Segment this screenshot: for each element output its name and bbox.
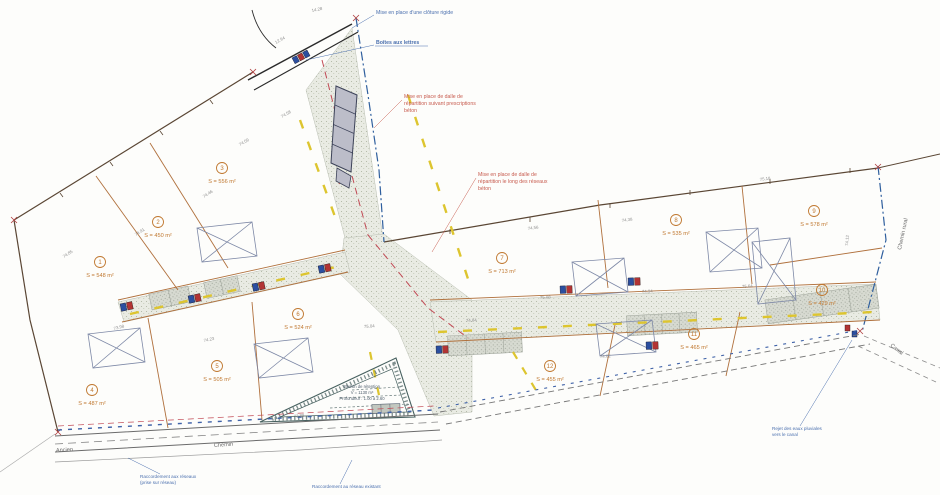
lot-area: S = 487 m² xyxy=(78,401,106,407)
lot-area: S = 455 m² xyxy=(536,377,564,383)
utility-box-pair xyxy=(560,286,572,294)
lot-area: S = 556 m² xyxy=(208,179,236,185)
crossed-building xyxy=(88,328,145,368)
mailboxes-note: Boîtes aux lettres xyxy=(376,40,419,46)
outfall-note: Rejet des eaux pluviales xyxy=(772,426,822,431)
lot-line-2-3 xyxy=(150,143,228,268)
basin-label-1: Bassin de rétention xyxy=(344,384,381,389)
basin-label-2: V = 1130 m³ xyxy=(351,390,374,395)
lot-line-4-5 xyxy=(148,318,168,428)
crossed-building xyxy=(706,228,762,272)
lot-number: 3 xyxy=(220,166,224,172)
spot-value: 74.62 xyxy=(600,353,612,359)
spot-value: 74.23 xyxy=(203,336,215,343)
lot-line-5-6 xyxy=(252,302,262,420)
street-label-ancien: Ancien xyxy=(56,447,73,454)
lot-number: 5 xyxy=(215,364,219,370)
lot-number: 7 xyxy=(500,256,504,262)
crossed-building xyxy=(254,338,313,378)
site-plan: Bassin de rétention V = 1130 m³ Profonde… xyxy=(0,0,940,495)
chemin-edge-faint xyxy=(55,440,442,462)
lot-line-9-10 xyxy=(770,248,882,265)
spot-value: 74.38 xyxy=(621,216,633,223)
lot-area: S = 578 m² xyxy=(800,222,828,228)
street-curve xyxy=(252,10,276,48)
street-label-chemin-rural: Chemin rural xyxy=(897,218,910,251)
lot-label-8: 8S = 535 m² xyxy=(662,215,690,238)
boundary-northwest xyxy=(14,72,253,220)
lot-label-7: 7S = 713 m² xyxy=(488,253,516,276)
slab-note-2: béton xyxy=(478,186,491,192)
spot-value: 74.84 xyxy=(466,317,478,323)
basin-label-3: Profondeur : 1.00 à 2.60 xyxy=(339,396,385,401)
lot-label-4: 4S = 487 m² xyxy=(78,385,106,408)
spot-value: 75.04 xyxy=(364,323,376,329)
slab-note-2: répartition le long des réseaux xyxy=(478,179,548,185)
spot-value: 74.09 xyxy=(238,137,250,147)
lot-label-1: 1S = 548 m² xyxy=(86,257,114,280)
connection-note: (prise sur réseau) xyxy=(140,480,176,485)
slab-note-1: Mise en place de dalle de xyxy=(404,94,463,100)
lot-label-12: 12S = 455 m² xyxy=(536,361,564,384)
red-network-dashes xyxy=(58,406,434,426)
connection-note: Raccordement aux réseaux xyxy=(140,474,197,479)
basin-cell xyxy=(372,404,400,414)
utility-box-pair xyxy=(628,278,640,286)
street-label-chemin: Chemin xyxy=(214,442,234,449)
boundary-north-east-block xyxy=(384,168,878,242)
boundary-extension xyxy=(878,154,940,168)
lot-line-11-12 xyxy=(600,325,615,396)
slab-note-2: Mise en place de dalle de xyxy=(478,172,537,178)
outfall-note: vers le canal xyxy=(772,432,798,437)
boundary-ticks xyxy=(60,100,213,197)
utility-box-pair xyxy=(646,342,658,350)
lot-label-3: 3S = 556 m² xyxy=(208,163,236,186)
lot-label-2: 2S = 450 m² xyxy=(144,217,172,240)
spot-value: 14.28 xyxy=(311,6,323,13)
gas-line xyxy=(408,95,470,285)
spot-value: 75.18 xyxy=(759,175,771,182)
lot-number: 11 xyxy=(691,332,698,338)
slab-note-1: répartition suivant prescriptions xyxy=(404,101,476,107)
parking-pad xyxy=(448,332,523,356)
spot-value: 12.94 xyxy=(274,35,286,45)
lot-area: S = 548 m² xyxy=(86,273,114,279)
lot-number: 8 xyxy=(674,218,678,224)
lot-label-9: 9S = 578 m² xyxy=(800,206,828,229)
sewer-note: Raccordement au réseau existant xyxy=(312,484,381,489)
outfall-note-leader xyxy=(800,340,852,426)
lot-area: S = 524 m² xyxy=(284,325,312,331)
boundary-west xyxy=(14,220,58,432)
crossed-building xyxy=(197,222,257,262)
spot-value: 74.12 xyxy=(844,234,850,246)
plan-drawing: Bassin de rétention V = 1130 m³ Profonde… xyxy=(0,0,940,495)
lot-area: S = 465 m² xyxy=(680,345,708,351)
sewer-note-leader xyxy=(340,460,352,484)
lot-number: 6 xyxy=(296,312,300,318)
lot-area: S = 450 m² xyxy=(144,233,172,239)
lot-number: 4 xyxy=(90,388,94,394)
spot-value: 74.85 xyxy=(62,248,74,258)
lot-label-5: 5S = 505 m² xyxy=(203,361,231,384)
gas-line xyxy=(513,352,537,392)
spot-value: 73.88 xyxy=(293,412,305,419)
crossed-building xyxy=(572,258,628,296)
spot-value: 74.46 xyxy=(202,188,214,198)
lot-area: S = 429 m² xyxy=(808,301,836,307)
blue-network-dashes xyxy=(58,410,434,430)
spot-value: 75.64 xyxy=(742,283,754,289)
lot-number: 2 xyxy=(156,220,160,226)
retention-basin: Bassin de rétention V = 1130 m³ Profonde… xyxy=(260,358,415,422)
street-label-canal: Canal xyxy=(889,343,904,357)
spot-value: 74.58 xyxy=(280,109,292,119)
lot-area: S = 713 m² xyxy=(488,269,516,275)
lot-number: 10 xyxy=(819,288,826,294)
fence-note: Mise en place d'une clôture rigide xyxy=(376,10,453,16)
lot-area: S = 505 m² xyxy=(203,377,231,383)
lot-number: 1 xyxy=(98,260,102,266)
connection-note-leader xyxy=(128,458,160,474)
lot-label-6: 6S = 524 m² xyxy=(284,309,312,332)
chemin-continuation xyxy=(446,344,870,424)
spot-value: 75.08 xyxy=(540,294,552,300)
slab-note-1: béton xyxy=(404,108,417,114)
lot-number: 12 xyxy=(547,364,554,370)
spot-value: 74.94 xyxy=(642,288,654,294)
lot-area: S = 535 m² xyxy=(662,231,690,237)
lot-number: 9 xyxy=(812,209,816,215)
spot-value: 74.56 xyxy=(527,224,539,231)
slab-note-1-leader xyxy=(374,100,402,128)
corner-line xyxy=(0,434,55,472)
